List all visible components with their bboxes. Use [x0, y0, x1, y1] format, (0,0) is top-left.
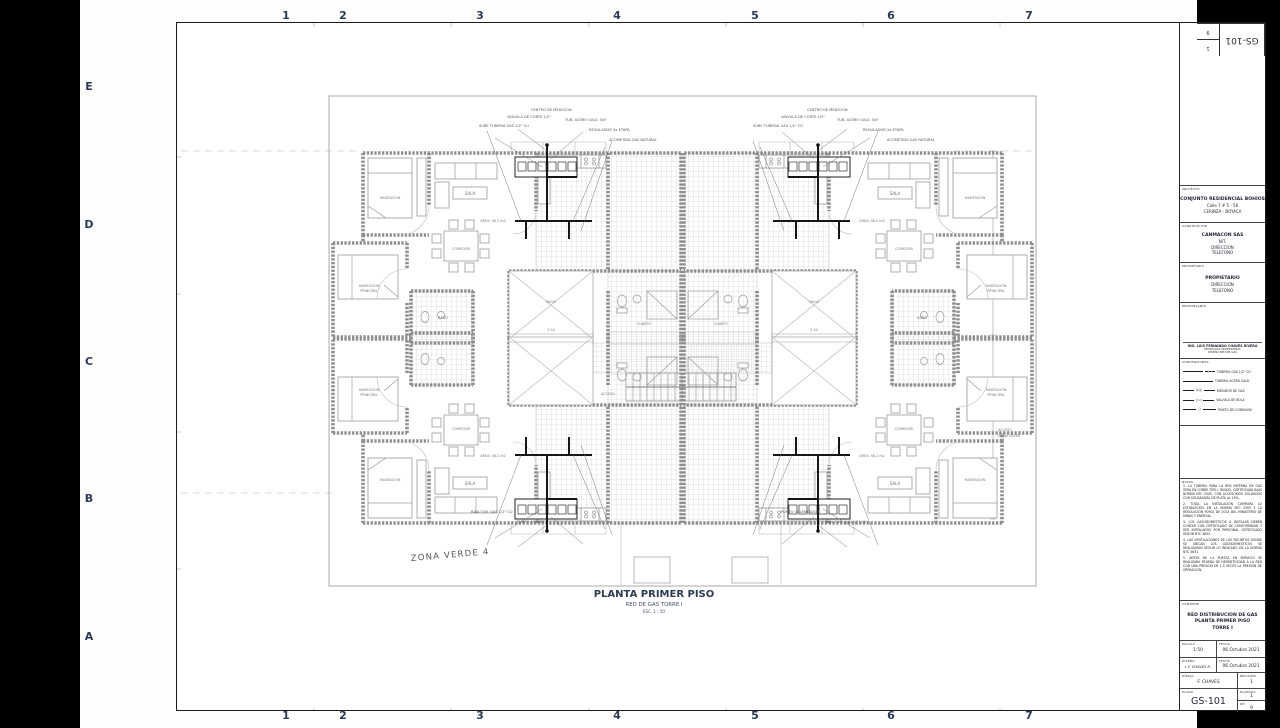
- site-label-acceso-zona-verde: ZONA VERDE: [998, 434, 1021, 438]
- dibujo-label: DIBUJO: [1182, 674, 1194, 678]
- legend-line-dashed: [1205, 371, 1215, 372]
- room-label-habitacion-principal: PRINCIPAL: [987, 289, 1004, 293]
- gas-annotation: TUB. ACERO GALV. 3/4": [564, 118, 607, 122]
- grid-label-top-5: 5: [748, 9, 762, 22]
- zona-verde-label: ZONA VERDE 4: [410, 547, 489, 564]
- room-label-habitacion-principal: HABITACION: [359, 284, 380, 288]
- room-label-area: AREA: 48.2 m2: [480, 454, 505, 458]
- room-label-sala: SALA: [465, 481, 476, 486]
- legend-row: ◎◎ MEDIDOR DE GAS: [1180, 386, 1265, 396]
- grid-label-top-4: 4: [610, 9, 624, 22]
- legend-text: TUBERIA ACERO GALV.: [1215, 379, 1250, 383]
- room-label-cuarto: CUARTO: [714, 322, 728, 326]
- constructor-label: CONSTRUCTOR: [1182, 224, 1207, 228]
- titleblock-responsable: RESPONSABLE ING. LUIS FERNANDO CHAVES RI…: [1180, 303, 1265, 359]
- room-label-sala: SALA: [890, 481, 901, 486]
- gas-annotation: SUBE TUBERIA GAS 1/2" CU: [479, 124, 529, 128]
- escala-value: 1:50: [1193, 645, 1203, 653]
- nota: 1. LA TUBERIA PARA LA RED INTERNA DE GAS…: [1183, 484, 1262, 500]
- room-label-habitacion: HABITACION: [965, 196, 986, 200]
- grid-label-left-C: C: [82, 355, 96, 368]
- titleblock-proyecto: PROYECTO CONJUNTO RESIDENCIAL BOHIOS Cal…: [1180, 186, 1265, 223]
- gas-annotation: ACOMETIDA GAS NATURAL: [609, 138, 657, 142]
- room-label-sala: SALA: [890, 191, 901, 196]
- drawing-viewport: 1 2 3 4 5 6 7 1 2 3 4 5 6 7 E D C B A: [80, 0, 1197, 728]
- grid-label-top-6: 6: [884, 9, 898, 22]
- room-label-comedor: COMEDOR: [895, 247, 913, 251]
- plan-title: PLANTA PRIMER PISO: [594, 589, 715, 600]
- room-label-bano: BAÑO: [438, 315, 448, 320]
- dibujo-value: F. CHAVES: [1197, 677, 1219, 685]
- legend-row: TUBERIA GAS 1/2" CU: [1180, 367, 1265, 377]
- rotated-sheet-code: GS-101: [1220, 24, 1264, 56]
- legend-line-solid: [1183, 400, 1194, 401]
- grid-label-top-1: 1: [279, 9, 293, 22]
- legend-line-solid: [1203, 400, 1214, 401]
- de-label: DE: [1240, 702, 1245, 706]
- constructor-telefono: TELEFONO: [1212, 250, 1233, 256]
- rotated-sheet-number: 1: [1197, 41, 1219, 57]
- titleblock-rotated-corner: GS-101 1 9: [1180, 23, 1265, 57]
- gas-annotation: BAJA TUB. GAS 1/2" CU: [471, 510, 513, 514]
- nota: 5. ANTES DE LA PUESTA EN SERVICIO SE REA…: [1183, 556, 1262, 572]
- plan-scale-note: ESC. 1 : 50: [643, 609, 665, 614]
- site-label-acceso-zona-verde: ACCESO: [998, 428, 1012, 432]
- room-label-habitacion-principal: PRINCIPAL: [987, 393, 1004, 397]
- gas-annotation: REGULADOR 2a ETAPA: [863, 128, 904, 132]
- gas-annotation: PUNTO ESTUFA: [517, 520, 545, 524]
- point-symbol: ○: [1198, 408, 1201, 411]
- room-label-habitacion: HABITACION: [380, 478, 401, 482]
- legend-row: ▷◁ VALVULA DE BOLA: [1180, 396, 1265, 406]
- meter-symbol: ◎◎: [1196, 389, 1202, 392]
- room-label-habitacion-principal: PRINCIPAL: [360, 289, 377, 293]
- drawing-sheet: SALA SALA SALA SALA COMEDOR COMEDOR COME…: [176, 22, 1266, 711]
- fecha-label: FECHA: [1219, 642, 1230, 646]
- engineer-rol: DISEÑO RED DE GAS: [1180, 351, 1265, 355]
- room-label-sala: SALA: [465, 191, 476, 196]
- gas-annotation: CENTRO DE MEDICION: [531, 108, 572, 112]
- titleblock-convenciones: CONVENCIONES TUBERIA GAS 1/2" CU TUBERIA…: [1180, 359, 1265, 426]
- notas-label: NOTAS: [1182, 480, 1193, 484]
- room-label-habitacion-principal: HABITACION: [359, 388, 380, 392]
- valve-symbol: ▷◁: [1196, 399, 1201, 402]
- gas-annotation: ACOMETIDA GAS NATURAL: [887, 138, 935, 142]
- fecha-diseno-value: 06 Octubre 2021: [1222, 645, 1259, 653]
- propietario-telefono: TELEFONO: [1212, 288, 1233, 294]
- room-label-habitacion: HABITACION: [380, 196, 401, 200]
- room-label-area: AREA: 48.2 m2: [859, 454, 884, 458]
- legend-line-solid: [1183, 381, 1213, 382]
- room-label-vacio: VACIO: [546, 300, 557, 304]
- room-label-habitacion-principal: PRINCIPAL: [360, 393, 377, 397]
- responsable-label: RESPONSABLE: [1182, 304, 1206, 308]
- nota: 2. TODA LA INSTALACION CUMPLIRA LO ESTAB…: [1183, 502, 1262, 518]
- titleblock-propietario: PROPIETARIO PROPIETARIO DIRECCION TELEFO…: [1180, 263, 1265, 303]
- grid-label-left-D: D: [82, 218, 96, 231]
- grid-label-top-3: 3: [473, 9, 487, 22]
- sheet-code: GS-101: [1191, 694, 1226, 707]
- de-value: 9: [1250, 703, 1253, 711]
- fecha-dibujo-label: FECHA: [1219, 659, 1230, 663]
- dimension-value: 2.54: [547, 328, 555, 332]
- room-label-habitacion-principal: HABITACION: [986, 284, 1007, 288]
- room-label-area: AREA: 48.2 m2: [859, 219, 884, 223]
- convenciones-label: CONVENCIONES: [1182, 360, 1209, 364]
- legend-text: PUNTO DE CONEXION: [1218, 408, 1252, 412]
- titleblock-notas: NOTAS 1. LA TUBERIA PARA LA RED INTERNA …: [1180, 479, 1265, 601]
- dimension-value: 2.54: [810, 328, 818, 332]
- revision-label: REVISION: [1240, 674, 1256, 678]
- plan-subtitle: RED DE GAS TORRE I: [625, 602, 682, 608]
- titleblock-contiene: CONTIENE RED DISTRIBUCION DE GAS PLANTA …: [1180, 601, 1265, 641]
- titleblock-row-diseno: DISEÑO L.F. CHAVES R. FECHA 06 Octubre 2…: [1180, 658, 1265, 673]
- legend-line-solid: [1204, 390, 1215, 391]
- gas-annotation: TUB. ACERO GALV. 3/4": [836, 118, 879, 122]
- gas-annotation: VALVULA DE CORTE 1/2": [781, 115, 825, 119]
- legend-row: TUBERIA ACERO GALV.: [1180, 377, 1265, 387]
- legend-line-solid: [1203, 409, 1216, 410]
- room-label-comedor: COMEDOR: [452, 427, 470, 431]
- legend-text: TUBERIA GAS 1/2" CU: [1217, 370, 1251, 374]
- video-frame: 1 2 3 4 5 6 7 1 2 3 4 5 6 7 E D C B A: [0, 0, 1280, 728]
- legend-text: MEDIDOR DE GAS: [1217, 389, 1245, 393]
- gas-annotation: PUNTO CALENTADOR: [781, 510, 820, 514]
- grid-label-top-2: 2: [336, 9, 350, 22]
- proyecto-city: CERINZA - BOYACA: [1204, 209, 1242, 215]
- plano-label: PLANO: [1182, 690, 1193, 694]
- nota: 3. LOS GASODOMESTICOS A INSTALAR DEBEN C…: [1183, 520, 1262, 536]
- legend-text: VALVULA DE BOLA: [1216, 398, 1244, 402]
- room-label-habitacion-principal: HABITACION: [986, 388, 1007, 392]
- gas-annotation: SUBE TUBERIA GAS 1/2" CU: [753, 124, 803, 128]
- gas-annotation: BAJA TUB. GAS 1/2" CU: [825, 520, 867, 524]
- proyecto-label: PROYECTO: [1182, 187, 1200, 191]
- room-label-area: AREA: 48.2 m2: [480, 219, 505, 223]
- room-label-cuarto: CUARTO: [637, 322, 651, 326]
- nota: 4. LAS VENTILACIONES DE LOS RECINTOS DON…: [1183, 538, 1262, 554]
- room-label-habitacion: HABITACION: [965, 478, 986, 482]
- title-block: GS-101 1 9 PROYECTO CONJUNTO RESIDENCIAL…: [1179, 23, 1265, 710]
- sheet-content-3: TORRE I: [1212, 626, 1233, 632]
- gas-annotation: VALVULA DE CORTE 1/2": [507, 115, 551, 119]
- legend-line-solid: [1183, 371, 1203, 372]
- floor-plan: SALA SALA SALA SALA COMEDOR COMEDOR COME…: [177, 23, 1180, 710]
- legend-line-solid: [1183, 390, 1194, 391]
- room-label-comedor: COMEDOR: [895, 427, 913, 431]
- titleblock-row-dibujo: DIBUJO F. CHAVES REVISION 1: [1180, 673, 1265, 689]
- titleblock-row-escala: ESCALA 1:50 FECHA 06 Octubre 2021: [1180, 641, 1265, 658]
- titleblock-row-plano: PLANO GS-101 PLANCHA 1 DE 9: [1180, 689, 1265, 712]
- grid-label-left-A: A: [82, 630, 96, 643]
- room-label-acceso: ACCESO: [601, 392, 615, 396]
- titleblock-constructor: CONSTRUCTOR CANMACON SAS NIT. DIRECCION …: [1180, 223, 1265, 263]
- titleblock-blank: [1180, 57, 1265, 186]
- grid-label-left-B: B: [82, 492, 96, 505]
- legend-row: ○ PUNTO DE CONEXION: [1180, 405, 1265, 415]
- gas-annotation: REGULADOR 2a ETAPA: [589, 128, 630, 132]
- gas-annotation: CENTRO DE MEDICION: [807, 108, 848, 112]
- diseno-label: DISEÑO: [1182, 659, 1195, 663]
- room-label-vacio: VACIO: [809, 300, 820, 304]
- escala-label: ESCALA: [1182, 642, 1195, 646]
- room-label-comedor: COMEDOR: [452, 247, 470, 251]
- titleblock-blank-2: [1180, 426, 1265, 479]
- legend-line-solid: [1183, 409, 1196, 410]
- grid-label-left-E: E: [82, 80, 96, 93]
- room-label-bano: BAÑO: [917, 315, 927, 320]
- propietario-label: PROPIETARIO: [1182, 264, 1204, 268]
- rotated-sheet-total: 9: [1197, 24, 1219, 41]
- contiene-label: CONTIENE: [1182, 602, 1199, 606]
- grid-label-top-7: 7: [1022, 9, 1036, 22]
- plancha-label: PLANCHA: [1240, 690, 1256, 694]
